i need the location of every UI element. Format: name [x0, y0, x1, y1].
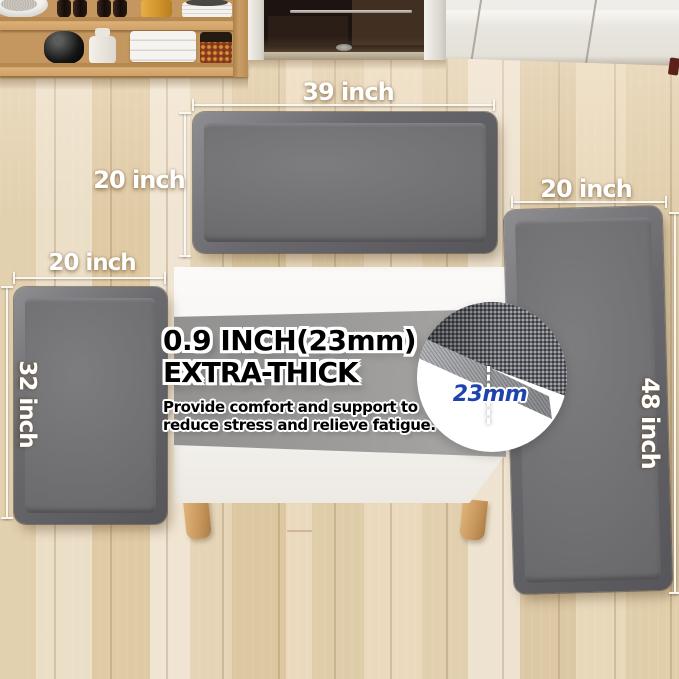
dark-bottle	[97, 0, 111, 18]
oven-frame-left	[248, 0, 265, 60]
white-ceramic-jar	[89, 36, 116, 64]
dim-tick	[669, 212, 679, 214]
shelf-board	[0, 63, 248, 76]
shelf-board	[0, 17, 248, 30]
cabinet-seam	[470, 0, 483, 66]
dim-line-left-mat-width	[13, 277, 166, 279]
dim-tick	[192, 99, 194, 111]
mat-top-surface	[204, 123, 486, 242]
dim-tick	[13, 272, 15, 284]
shelf-side-panel	[233, 0, 248, 77]
dim-label-20-inch-left: 20 inch	[22, 250, 162, 276]
plate-stack	[182, 2, 232, 18]
dim-label-32-inch: 32 inch	[14, 359, 40, 449]
oven-reflection	[352, 0, 424, 45]
thickness-description-line2: reduce stress and relieve fatigue.	[163, 416, 463, 434]
cabinet-seam	[585, 0, 598, 66]
towel-stack	[130, 31, 196, 62]
dim-tick	[511, 196, 513, 208]
oven-base-trim	[264, 52, 424, 60]
white-bowl	[0, 0, 48, 18]
dim-label-20-inch-right: 20 inch	[516, 175, 656, 203]
dim-tick	[179, 255, 191, 257]
dim-tick	[493, 99, 495, 111]
oven	[248, 0, 446, 60]
kitchen-cabinets	[446, 0, 679, 66]
table-leg-left	[183, 498, 212, 540]
dim-tick	[669, 592, 679, 594]
dim-line-right-mat-height	[674, 212, 676, 594]
dark-bottle	[73, 0, 87, 18]
black-pot	[44, 31, 84, 64]
dim-line-left-mat-height	[6, 286, 8, 519]
dim-label-48-inch: 48 inch	[636, 373, 664, 473]
product-photo-scene: 0.9 INCH(23mm) EXTRA-THICK Provide comfo…	[0, 0, 679, 679]
kitchen-shelf	[0, 0, 248, 78]
dim-tick	[179, 112, 191, 114]
thickness-detail-circle: 23mm	[417, 302, 567, 452]
oven-glass	[264, 0, 424, 52]
mat-left-surface	[25, 298, 156, 513]
oven-reflection	[268, 16, 348, 45]
table-leg-right	[459, 499, 488, 541]
oven-handle-bar	[290, 10, 412, 13]
cabinet-red-accent	[668, 57, 679, 75]
thickness-description-line1: Provide comfort and support to	[163, 398, 463, 416]
oven-frame-right	[424, 0, 446, 60]
wood-plank-joint	[287, 530, 312, 532]
dim-tick	[1, 286, 13, 288]
dark-bottle	[57, 0, 71, 18]
detail-measure-label: 23mm	[435, 382, 545, 407]
oven-logo	[336, 44, 352, 51]
dim-label-20-inch-top: 20 inch	[69, 166, 209, 194]
amber-jar	[141, 0, 172, 18]
dim-label-39-inch: 39 inch	[278, 78, 418, 106]
dark-bottle	[113, 0, 127, 18]
dim-tick	[1, 517, 13, 519]
mat-top	[193, 112, 497, 253]
dim-tick	[665, 196, 667, 208]
candy-jar	[200, 32, 232, 64]
dim-tick	[164, 272, 166, 284]
